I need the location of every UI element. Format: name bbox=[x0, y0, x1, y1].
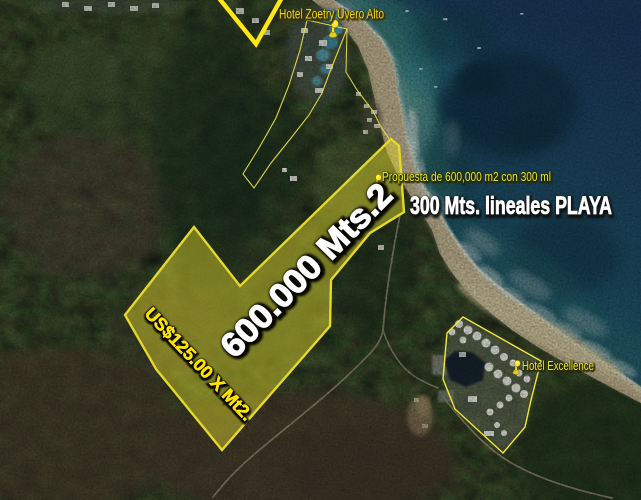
svg-text:300 Mts. lineales PLAYA: 300 Mts. lineales PLAYA bbox=[410, 192, 612, 220]
svg-text:Propuesta de 600,000 m2 con 30: Propuesta de 600,000 m2 con 300 ml bbox=[382, 170, 551, 184]
svg-text:Hotel Zoetry Uvero Alto: Hotel Zoetry Uvero Alto bbox=[279, 6, 384, 22]
svg-text:Hotel Excellence: Hotel Excellence bbox=[522, 359, 594, 373]
